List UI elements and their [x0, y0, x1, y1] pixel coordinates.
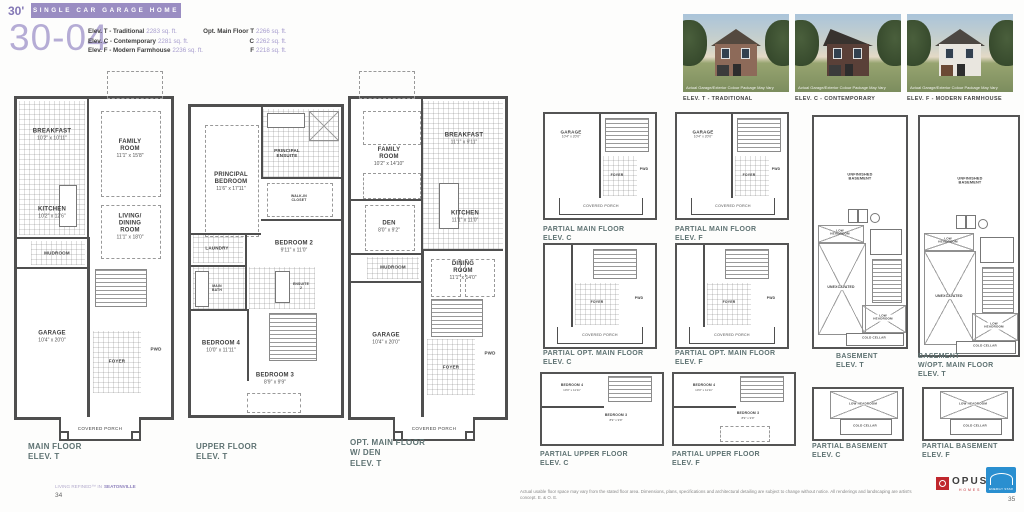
lot-width-label: 30': [8, 4, 24, 18]
wall: [17, 267, 89, 269]
elevation-photo-modern-farmhouse: Actual Garage/Exterior Colour Package Ma…: [907, 14, 1013, 92]
room-low-headroom: LOW HEADROOM: [982, 323, 1006, 330]
spec-value: 2283 sq. ft.: [146, 28, 177, 35]
room-foyer: FOYER: [743, 174, 756, 178]
plan-label-main-floor-t: MAIN FLOOR ELEV. T: [28, 442, 82, 463]
room-foyer: FOYER: [611, 174, 624, 178]
dashed-outline: [363, 111, 421, 145]
shower: [309, 111, 339, 141]
room-powder: PWD: [772, 168, 781, 172]
spec-label: Elev. F - Modern Farmhouse: [88, 47, 170, 54]
spec-list: Elev. T - Traditional2283 sq. ft. Elev. …: [88, 28, 203, 57]
garage-door: [941, 65, 953, 76]
spec-row: Elev. F - Modern Farmhouse2236 sq. ft.: [88, 47, 203, 54]
stairs: [269, 313, 317, 361]
wall: [351, 199, 423, 201]
opt-spec-list: Opt. Main Floor T2266 sq. ft. C2262 sq. …: [200, 28, 300, 57]
tree: [795, 20, 819, 66]
laundry-tub: [848, 209, 858, 223]
wall: [571, 245, 573, 327]
spec-label: Elev. T - Traditional: [88, 28, 144, 35]
floorplan-main-floor-t: BREAKFAST10'2" x 10'11" FAMILY ROOM11'1"…: [14, 96, 174, 420]
spec-row: C2262 sq. ft.: [200, 38, 300, 45]
porch-pillar: [59, 431, 69, 441]
tree: [907, 20, 931, 66]
floorplan-upper-floor-t: PRINCIPAL BEDROOM11'6" x 17'11" PRINCIPA…: [188, 104, 344, 418]
wall: [731, 114, 733, 198]
room-breakfast: BREAKFAST10'2" x 10'11": [33, 129, 71, 142]
opus-sub: HOMES: [952, 488, 988, 492]
plan-label-partial-opt-f: PARTIAL OPT. MAIN FLOOR ELEV. F: [675, 349, 775, 367]
wall: [351, 253, 423, 255]
room-bedroom3: BEDROOM 38'9" x 9'9": [605, 414, 627, 422]
elevation-caption-t: ELEV. T - TRADITIONAL: [683, 96, 753, 102]
opus-logo-icon: [936, 477, 949, 490]
floorplan-opt-main-floor-t: FAMILY ROOM10'2" x 14'10" BREAKFAST11'1"…: [348, 96, 508, 420]
floorplan-partial-main-c: GARAGE10'4" x 20'0" FOYER PWD COVERED PO…: [543, 112, 657, 220]
stairs: [982, 267, 1014, 313]
wall: [247, 311, 249, 381]
plan-label-basement-t: BASEMENT ELEV. T: [836, 352, 878, 370]
room-living-dining: LIVING/ DINING ROOM11'1" x 18'0": [110, 214, 151, 241]
wall: [351, 281, 423, 283]
tagline-prefix: LIVING REFINED™ IN: [55, 484, 102, 489]
photo-note: Actual Garage/Exterior Colour Package Ma…: [798, 85, 886, 90]
floorplan-partial-upper-c: BEDROOM 410'0" x 11'11" BEDROOM 38'9" x …: [540, 372, 664, 446]
tree: [989, 20, 1013, 66]
room-garage: GARAGE10'4" x 20'0": [372, 333, 400, 346]
opus-name: OPUS: [952, 477, 988, 487]
room-foyer: FOYER: [591, 301, 604, 305]
house-rendering: [715, 29, 757, 76]
plan-label-partial-main-c: PARTIAL MAIN FLOOR ELEV. C: [543, 225, 624, 243]
room-mudroom: MUDROOM: [380, 264, 406, 269]
window: [945, 48, 954, 59]
floor-drain: [978, 219, 988, 229]
house-body: [827, 44, 869, 76]
photo-note: Actual Garage/Exterior Colour Package Ma…: [686, 85, 774, 90]
tree: [683, 20, 707, 66]
room-garage: GARAGE10'4" x 20'0": [38, 331, 66, 344]
plan-label-partial-basement-c: PARTIAL BASEMENT ELEV. C: [812, 442, 888, 460]
bath-rough-in: [870, 229, 902, 255]
ring-icon: [939, 480, 946, 487]
wall: [87, 237, 90, 417]
house-body: [715, 44, 757, 76]
room-cold-cellar: COLD CELLAR: [862, 336, 886, 339]
room-main-bath: MAIN BATH: [212, 285, 222, 293]
room-dining: DINING ROOM11'1" x 14'0": [442, 261, 484, 281]
room-bedroom4: BEDROOM 410'0" x 11'11": [693, 384, 715, 392]
plan-label-partial-upper-f: PARTIAL UPPER FLOOR ELEV. F: [672, 450, 760, 468]
room-den: DEN8'0" x 9'2": [378, 221, 400, 234]
stairs: [95, 269, 147, 307]
spec-row: Opt. Main Floor T2266 sq. ft.: [200, 28, 300, 35]
window: [853, 48, 862, 59]
plan-label-opt-main-floor-t: OPT. MAIN FLOOR W/ DEN ELEV. T: [350, 438, 425, 469]
front-door: [845, 64, 853, 76]
opt-deck-steps: [107, 71, 163, 99]
floorplan-partial-basement-f: LOW HEADROOM COLD CELLAR: [922, 387, 1014, 441]
room-low-headroom: LOW HEADROOM: [830, 230, 849, 237]
stairs: [725, 249, 769, 279]
elevation-caption-f: ELEV. F - MODERN FARMHOUSE: [907, 96, 1002, 102]
wall: [421, 249, 424, 417]
wall: [423, 249, 503, 251]
floorplan-basement-t: UNFINISHED BASEMENT LOW HEADROOM UNEXCAV…: [812, 115, 908, 349]
covered-porch: COVERED PORCH: [689, 327, 775, 344]
covered-porch: COVERED PORCH: [559, 198, 643, 215]
plan-label-basement-opt-t: BASEMENT W/OPT. MAIN FLOOR ELEV. T: [918, 352, 993, 379]
spec-row: F2218 sq. ft.: [200, 47, 300, 54]
plan-label-partial-opt-c: PARTIAL OPT. MAIN FLOOR ELEV. C: [543, 349, 643, 367]
covered-porch: COVERED PORCH: [557, 327, 643, 344]
laundry-tub: [858, 209, 868, 223]
covered-porch: COVERED PORCH: [691, 198, 775, 215]
energy-star-logo: ENERGY STAR: [986, 467, 1016, 493]
room-mudroom: MUDROOM: [44, 250, 70, 255]
room-powder: PWD: [640, 168, 649, 172]
stairs: [431, 299, 483, 337]
plan-label-upper-floor-t: UPPER FLOOR ELEV. T: [196, 442, 257, 463]
dashed-outline: [720, 426, 770, 442]
house-rendering: [827, 29, 869, 76]
room-bedroom4: BEDROOM 410'0" x 11'11": [202, 341, 240, 354]
bathtub: [267, 113, 305, 128]
tree: [765, 20, 789, 66]
floorplan-basement-opt-t: UNFINISHED BASEMENT LOW HEADROOM UNEXCAV…: [918, 115, 1020, 357]
bathtub: [275, 271, 290, 303]
page-number-right: 35: [1008, 496, 1015, 503]
wall: [17, 237, 89, 239]
tile-floor: [423, 101, 503, 249]
window: [741, 48, 750, 59]
bathtub: [195, 271, 209, 307]
room-family: FAMILY ROOM11'1" x 15'8": [110, 139, 151, 159]
spec-value: 2236 sq. ft.: [172, 47, 203, 54]
wall: [703, 245, 705, 327]
room-kitchen: KITCHEN11'1" x 11'0": [451, 211, 479, 224]
stairs: [737, 118, 781, 152]
room-cold-cellar: COLD CELLAR: [963, 424, 987, 427]
room-unfinished-basement: UNFINISHED BASEMENT: [957, 177, 982, 186]
tagline-community: SEATONVILLE: [104, 484, 136, 489]
room-principal-bedroom: PRINCIPAL BEDROOM11'6" x 17'11": [214, 172, 248, 192]
stairs: [593, 249, 637, 279]
elevation-photo-traditional: Actual Garage/Exterior Colour Package Ma…: [683, 14, 789, 92]
plan-label-partial-basement-f: PARTIAL BASEMENT ELEV. F: [922, 442, 998, 460]
energy-star-text: ENERGY STAR: [986, 487, 1016, 491]
stairs: [740, 376, 784, 402]
plan-label-partial-main-f: PARTIAL MAIN FLOOR ELEV. F: [675, 225, 756, 243]
banner-title: SINGLE CAR GARAGE HOME: [31, 3, 181, 18]
floorplan-partial-opt-c: FOYER PWD COVERED PORCH: [543, 243, 657, 349]
spec-label: Elev. C - Contemporary: [88, 38, 156, 45]
wall: [261, 177, 341, 179]
spec-value: 2266 sq. ft.: [256, 28, 300, 35]
garage-door: [829, 65, 841, 76]
floorplan-partial-basement-c: LOW HEADROOM COLD CELLAR: [812, 387, 904, 441]
dashed-outline: [363, 173, 421, 199]
window: [833, 48, 842, 59]
plan-label-partial-upper-c: PARTIAL UPPER FLOOR ELEV. C: [540, 450, 628, 468]
spec-value: 2281 sq. ft.: [158, 38, 189, 45]
room-foyer: FOYER: [109, 358, 126, 363]
wall: [261, 107, 263, 177]
community-tagline: LIVING REFINED™ INSEATONVILLE: [55, 484, 136, 489]
laundry-tub: [956, 215, 966, 229]
floorplan-partial-opt-f: FOYER PWD COVERED PORCH: [675, 243, 789, 349]
tree: [877, 20, 901, 66]
room-bedroom3: BEDROOM 38'9" x 9'9": [737, 412, 759, 420]
spec-label: C: [250, 38, 254, 45]
room-low-headroom: LOW HEADROOM: [872, 315, 895, 322]
bath-rough-in: [980, 237, 1014, 263]
floorplan-partial-upper-f: BEDROOM 410'0" x 11'11" BEDROOM 38'9" x …: [672, 372, 796, 446]
window: [965, 48, 974, 59]
house-body: [939, 44, 981, 76]
front-door: [957, 64, 965, 76]
room-cold-cellar: COLD CELLAR: [853, 424, 877, 427]
porch-pillar: [465, 431, 475, 441]
room-ensuite2: ENSUITE 2: [293, 283, 309, 291]
spec-label: Opt. Main Floor T: [203, 28, 254, 35]
room-unexcavated: UNEXCAVATED: [826, 286, 855, 290]
room-bedroom4: BEDROOM 410'0" x 11'11": [561, 384, 583, 392]
opus-homes-logo: OPUS HOMES: [936, 477, 988, 492]
spec-row: Elev. C - Contemporary2281 sq. ft.: [88, 38, 203, 45]
room-low-headroom: LOW HEADROOM: [938, 238, 957, 245]
room-low-headroom: LOW HEADROOM: [848, 402, 878, 405]
room-garage: GARAGE10'4" x 20'0": [561, 129, 582, 138]
stairs: [608, 376, 652, 402]
window: [721, 48, 730, 59]
garage-door: [717, 65, 729, 76]
wall: [245, 233, 247, 311]
spec-value: 2218 sq. ft.: [256, 47, 300, 54]
front-door: [733, 64, 741, 76]
room-low-headroom: LOW HEADROOM: [958, 402, 988, 405]
room-family: FAMILY ROOM10'2" x 14'10": [374, 147, 404, 167]
room-walk-in-closet: WALK-IN CLOSET: [291, 195, 307, 203]
floor-drain: [870, 213, 880, 223]
wall: [261, 219, 341, 221]
photo-note: Actual Garage/Exterior Colour Package Ma…: [910, 85, 998, 90]
room-bedroom3: BEDROOM 38'9" x 9'9": [256, 373, 294, 386]
room-powder: PWD: [484, 350, 495, 355]
room-foyer: FOYER: [723, 301, 736, 305]
wall: [542, 406, 604, 408]
room-kitchen: KITCHEN10'2" x 12'6": [38, 207, 66, 220]
room-unexcavated: UNEXCAVATED: [934, 295, 963, 299]
room-garage: GARAGE10'4" x 20'0": [693, 129, 714, 138]
room-cold-cellar: COLD CELLAR: [973, 344, 997, 347]
room-powder: PWD: [635, 297, 644, 301]
wall: [191, 309, 249, 311]
elevation-caption-c: ELEV. C - CONTEMPORARY: [795, 96, 875, 102]
stairs: [872, 259, 902, 303]
room-breakfast: BREAKFAST11'1" x 9'11": [445, 133, 483, 146]
room-foyer: FOYER: [443, 364, 460, 369]
laundry-tub: [966, 215, 976, 229]
wall: [674, 406, 736, 408]
energy-star-arc-icon: [990, 473, 1013, 485]
dashed-outline: [247, 393, 301, 413]
spec-value: 2262 sq. ft.: [256, 38, 300, 45]
room-laundry: LAUNDRY: [205, 245, 228, 250]
room-powder: PWD: [767, 297, 776, 301]
wall: [87, 99, 89, 237]
disclaimer-text: Actual usable floor space may vary from …: [520, 489, 925, 500]
room-principal-ensuite: PRINCIPAL ENSUITE: [274, 148, 300, 158]
floorplan-partial-main-f: GARAGE10'4" x 20'0" FOYER PWD COVERED PO…: [675, 112, 789, 220]
spec-row: Elev. T - Traditional2283 sq. ft.: [88, 28, 203, 35]
page-number-left: 34: [55, 492, 62, 499]
house-rendering: [939, 29, 981, 76]
opus-wordmark: OPUS HOMES: [952, 477, 988, 492]
wall: [421, 99, 423, 249]
room-bedroom2: BEDROOM 29'11" x 11'0": [275, 241, 313, 254]
wall: [599, 114, 601, 198]
spec-label: F: [250, 47, 254, 54]
room-unfinished-basement: UNFINISHED BASEMENT: [847, 173, 872, 182]
opt-deck-steps: [359, 71, 415, 99]
elevation-photo-contemporary: Actual Garage/Exterior Colour Package Ma…: [795, 14, 901, 92]
porch-pillar: [131, 431, 141, 441]
covered-porch: COVERED PORCH: [59, 417, 141, 441]
stairs: [605, 118, 649, 152]
room-powder: PWD: [150, 346, 161, 351]
